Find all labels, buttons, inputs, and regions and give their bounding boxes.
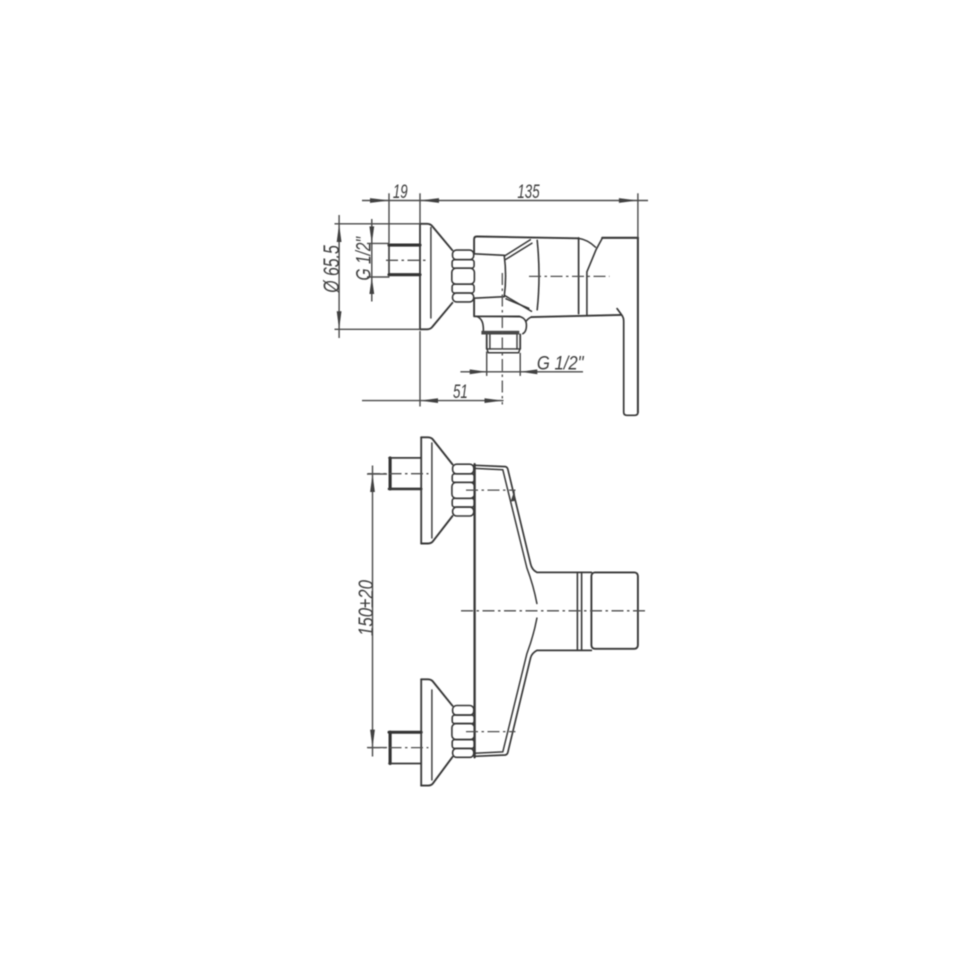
svg-text:51: 51 (453, 382, 468, 403)
svg-text:19: 19 (393, 182, 408, 203)
svg-text:G 1/2": G 1/2" (351, 236, 375, 281)
svg-text:150±20: 150±20 (355, 580, 378, 636)
svg-text:G 1/2": G 1/2" (537, 353, 585, 374)
svg-text:Ø 65.5: Ø 65.5 (320, 245, 344, 294)
svg-text:135: 135 (517, 182, 540, 203)
